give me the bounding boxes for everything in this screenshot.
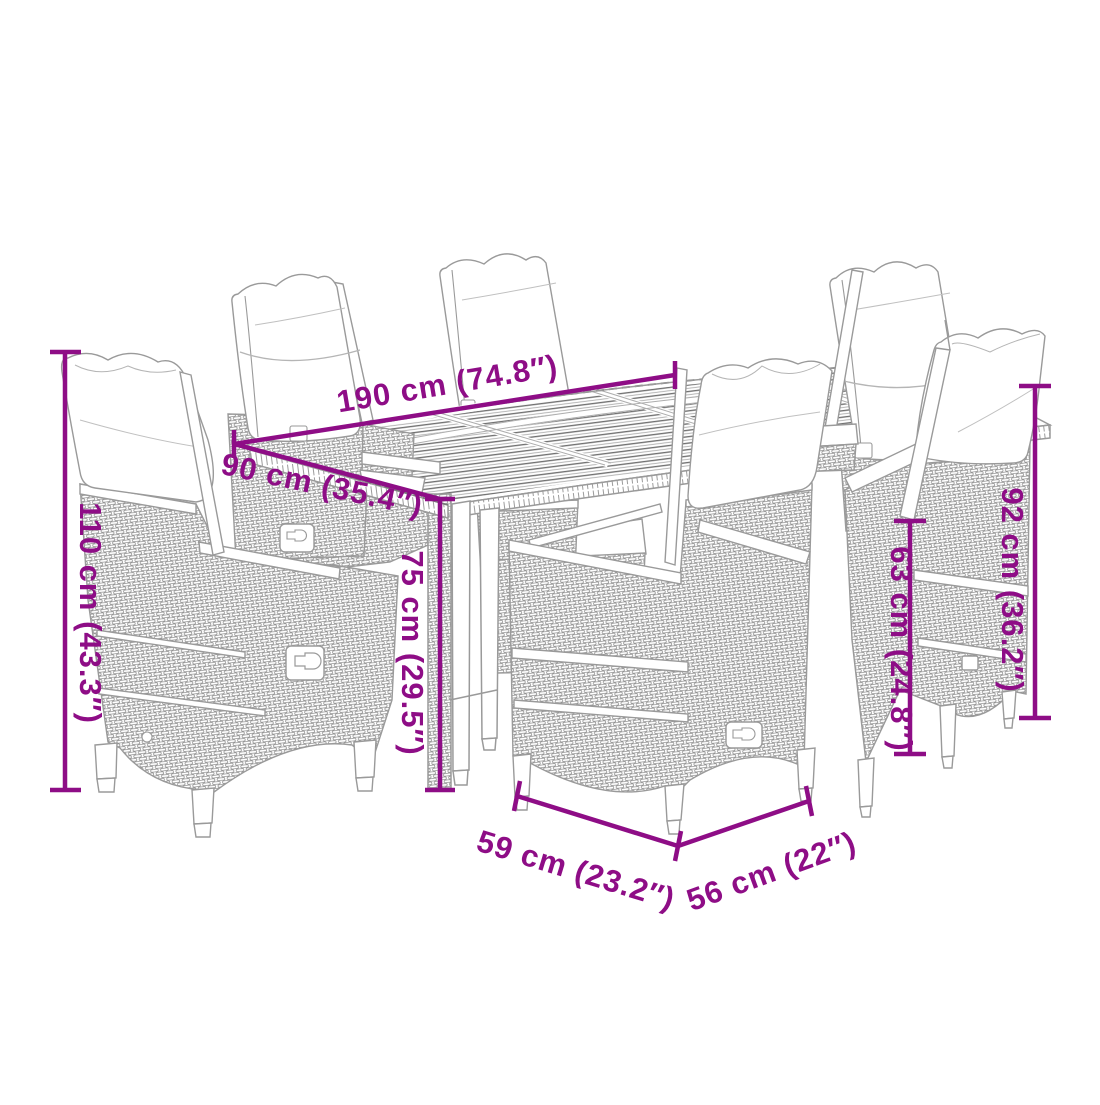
svg-text:92 cm (36.2″): 92 cm (36.2″) [995, 487, 1030, 692]
svg-text:75 cm (29.5″): 75 cm (29.5″) [395, 550, 430, 755]
svg-text:110 cm (43.3″): 110 cm (43.3″) [73, 502, 108, 724]
svg-text:63 cm (24.8″): 63 cm (24.8″) [884, 546, 919, 751]
